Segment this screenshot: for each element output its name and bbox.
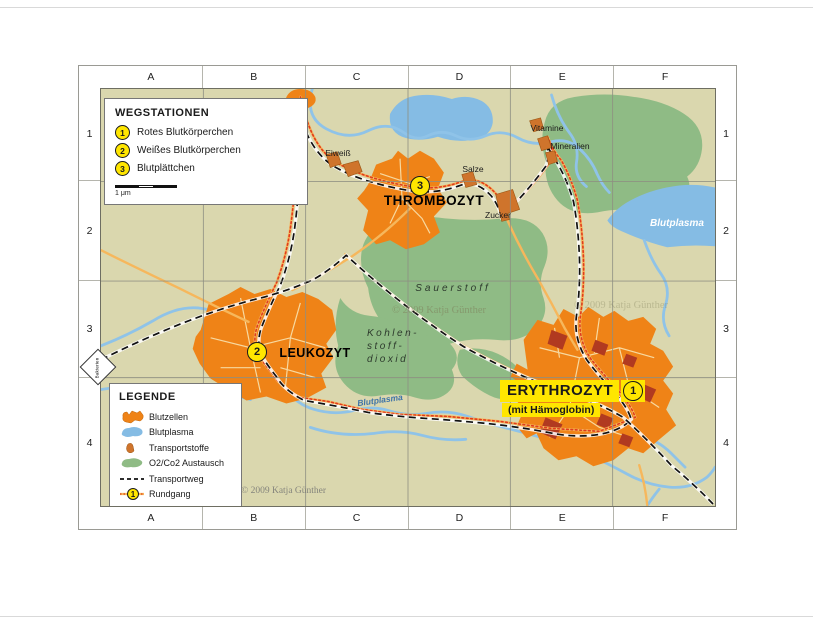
legende-box: LEGENDE Blutzellen Blutplasma Transports… (109, 383, 242, 507)
erythrozyt-subtitle: (mit Hämoglobin) (502, 403, 600, 417)
thrombozyt-city (357, 151, 447, 250)
scale-label: 1 μm (115, 190, 297, 197)
station-1-badge: 1 (115, 125, 130, 140)
erythrozyt-station-circle: 1 (623, 381, 643, 401)
legend-item-blutplasma: Blutplasma (119, 425, 233, 441)
legend-item-o2co2: O2/Co2 Austausch (119, 456, 233, 472)
grid-col-label-f: F (613, 66, 716, 88)
grid-row-label-1: 1 (79, 88, 100, 181)
grid-corner-tr (716, 66, 736, 88)
grid-col-label-e-bottom: E (510, 507, 613, 529)
grid-col-label-c: C (305, 66, 408, 88)
grid-corner-br (716, 507, 736, 529)
erythrozyt-label-row: ERYTHROZYT 1 (500, 380, 645, 402)
page: { "window": { "copyright": "© 2009 Katja… (0, 0, 813, 624)
leukozyt-station-circle: 2 (247, 342, 267, 362)
grid-row-label-1-right: 1 (716, 88, 736, 181)
page-top-border (0, 7, 813, 8)
grid-col-label-a: A (100, 66, 202, 88)
thrombozyt-station-circle: 3 (410, 176, 430, 196)
grid-col-label-c-bottom: C (305, 507, 408, 529)
map-area: WEGSTATIONEN 1 Rotes Blutkörperchen 2 We… (100, 88, 716, 507)
grid-corner-bl (79, 507, 100, 529)
map-widget: A B C D E F 1 2 3 4 (78, 65, 737, 530)
grid-row-label-4: 4 (79, 378, 100, 507)
grid-col-label-b: B (202, 66, 305, 88)
grid-col-label-a-bottom: A (100, 507, 202, 529)
blutplasma-swatch-icon (119, 425, 149, 439)
bakterien-sign: Bakterien (80, 345, 114, 391)
grid-col-label-d: D (408, 66, 511, 88)
scale-bar (115, 185, 297, 188)
legend-item-transportweg: Transportweg (119, 471, 233, 487)
wegstationen-item-3: 3 Blutplättchen (115, 161, 297, 176)
grid-col-label-e: E (510, 66, 613, 88)
transportstoffe-swatch-icon (119, 441, 149, 455)
rundgang-badge: 1 (127, 488, 139, 500)
legend-item-blutzellen: Blutzellen (119, 409, 233, 425)
vitamine-building (530, 118, 544, 132)
legend-item-transportstoffe: Transportstoffe (119, 440, 233, 456)
bakterien-sign-label: Bakterien (95, 358, 100, 379)
page-bottom-border (0, 616, 813, 617)
wegstationen-title: WEGSTATIONEN (115, 107, 297, 119)
grid-band-bottom: A B C D E F (100, 507, 716, 529)
grid-col-label-b-bottom: B (202, 507, 305, 529)
station-3-badge: 3 (115, 161, 130, 176)
grid-row-label-2-right: 2 (716, 181, 736, 281)
zucker-building (496, 190, 520, 222)
grid-band-left: 1 2 3 4 (79, 88, 100, 507)
station-2-badge: 2 (115, 143, 130, 158)
grid-row-label-4-right: 4 (716, 378, 736, 507)
erythrozyt-circle-box: 1 (621, 380, 645, 402)
erythrozyt-label: ERYTHROZYT (500, 380, 619, 402)
grid-col-label-d-bottom: D (408, 507, 511, 529)
grid-corner-tl (79, 66, 100, 88)
wegstationen-item-1: 1 Rotes Blutkörperchen (115, 125, 297, 140)
transportweg-line-icon (119, 475, 149, 483)
legende-title: LEGENDE (119, 391, 233, 403)
o2co2-swatch-icon (119, 456, 149, 470)
grid-row-label-3-right: 3 (716, 281, 736, 378)
grid-col-label-f-bottom: F (613, 507, 716, 529)
grid-band-right: 1 2 3 4 (716, 88, 736, 507)
wegstationen-item-2: 2 Weißes Blutkörperchen (115, 143, 297, 158)
grid-band-top: A B C D E F (100, 66, 716, 88)
grid-row-label-2: 2 (79, 181, 100, 281)
wegstationen-box: WEGSTATIONEN 1 Rotes Blutkörperchen 2 We… (104, 98, 308, 205)
legend-item-rundgang: 1 Rundgang (119, 487, 233, 503)
blutzellen-swatch-icon (119, 409, 149, 424)
